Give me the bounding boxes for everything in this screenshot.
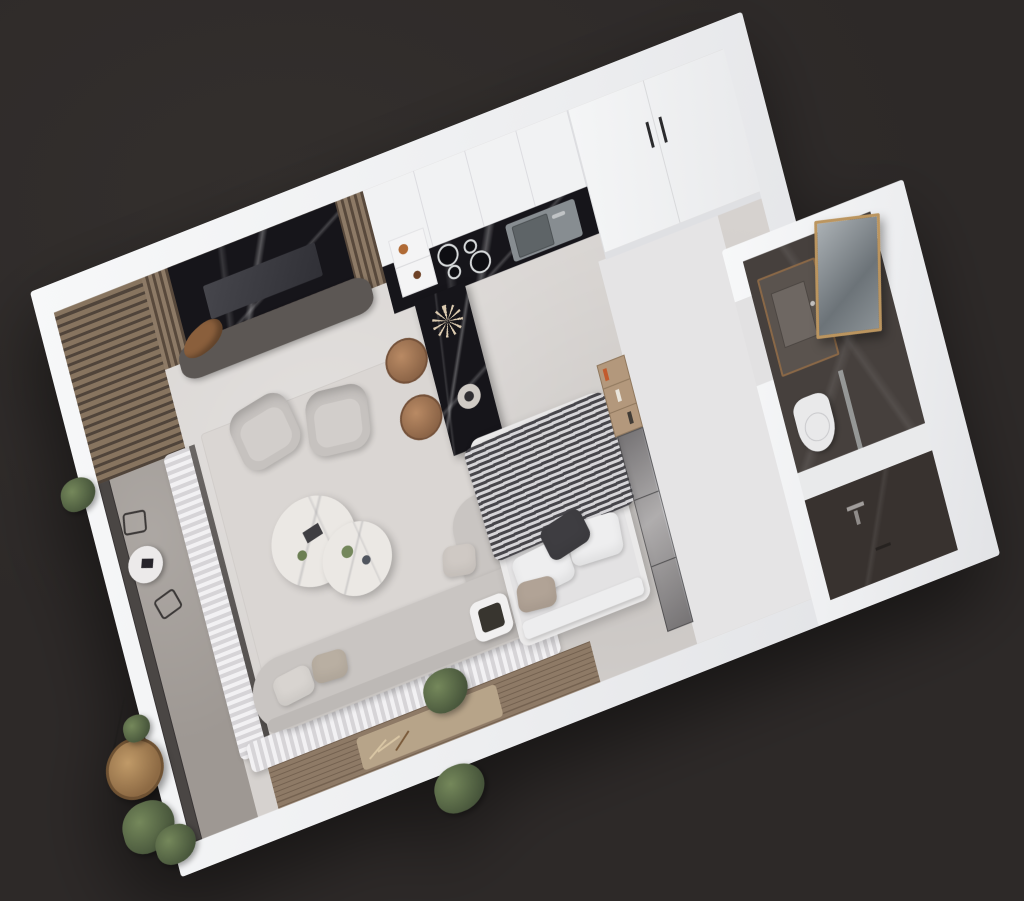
brass-framed-mirror — [814, 213, 882, 339]
faucet — [552, 210, 566, 219]
pampas-stem — [395, 730, 409, 751]
plant-sprig — [296, 549, 308, 562]
drain — [875, 542, 891, 551]
plant-sprig — [340, 544, 354, 560]
bowl — [412, 270, 421, 281]
tray-inset — [477, 601, 505, 633]
seat-cushion — [313, 396, 364, 450]
book-stack — [302, 523, 323, 544]
vessel-sink — [771, 280, 819, 348]
bowl — [397, 242, 409, 255]
decor-vase — [361, 554, 372, 566]
frame-line — [651, 557, 675, 568]
book — [603, 368, 610, 381]
book — [615, 389, 622, 402]
shower-bar — [854, 510, 861, 525]
book-on-table — [141, 559, 153, 569]
toilet-seat-line — [802, 408, 833, 445]
frame-line — [634, 490, 658, 501]
faucet — [810, 300, 816, 307]
apartment-plan — [30, 12, 893, 878]
door-handle — [658, 116, 667, 142]
balcony-chair — [122, 509, 147, 536]
book — [627, 411, 634, 424]
floor-plan-render — [0, 0, 1024, 901]
shelf-line — [395, 255, 431, 270]
door-seam — [643, 80, 681, 223]
glass-cup — [463, 390, 475, 403]
shelf-line — [609, 402, 637, 414]
sofa-cushion — [442, 542, 476, 578]
